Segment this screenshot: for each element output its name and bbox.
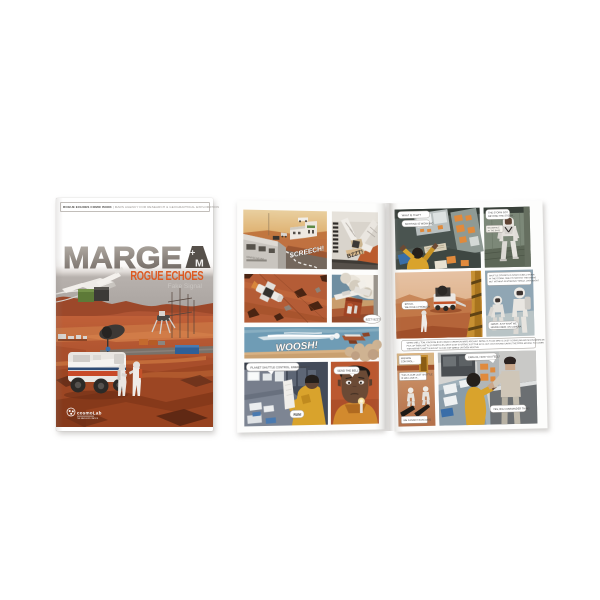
svg-text:+: + bbox=[190, 248, 195, 258]
svg-text:SEND THE BELL?: SEND THE BELL? bbox=[337, 369, 360, 373]
svg-text:cosmoLab: cosmoLab bbox=[77, 411, 102, 416]
svg-text:PLANET SHUTTLE CONTROL, EMERGE: PLANET SHUTTLE CONTROL, EMERGENCY! bbox=[250, 365, 310, 370]
svg-text:THE MARS EXPLORATION: THE MARS EXPLORATION bbox=[77, 417, 99, 420]
svg-text:WHAT IS THAT?: WHAT IS THAT? bbox=[402, 213, 422, 217]
svg-text:MARGE: MARGE bbox=[63, 242, 182, 270]
svg-text:RUN!: RUN! bbox=[293, 413, 301, 417]
svg-text:M: M bbox=[195, 258, 204, 270]
